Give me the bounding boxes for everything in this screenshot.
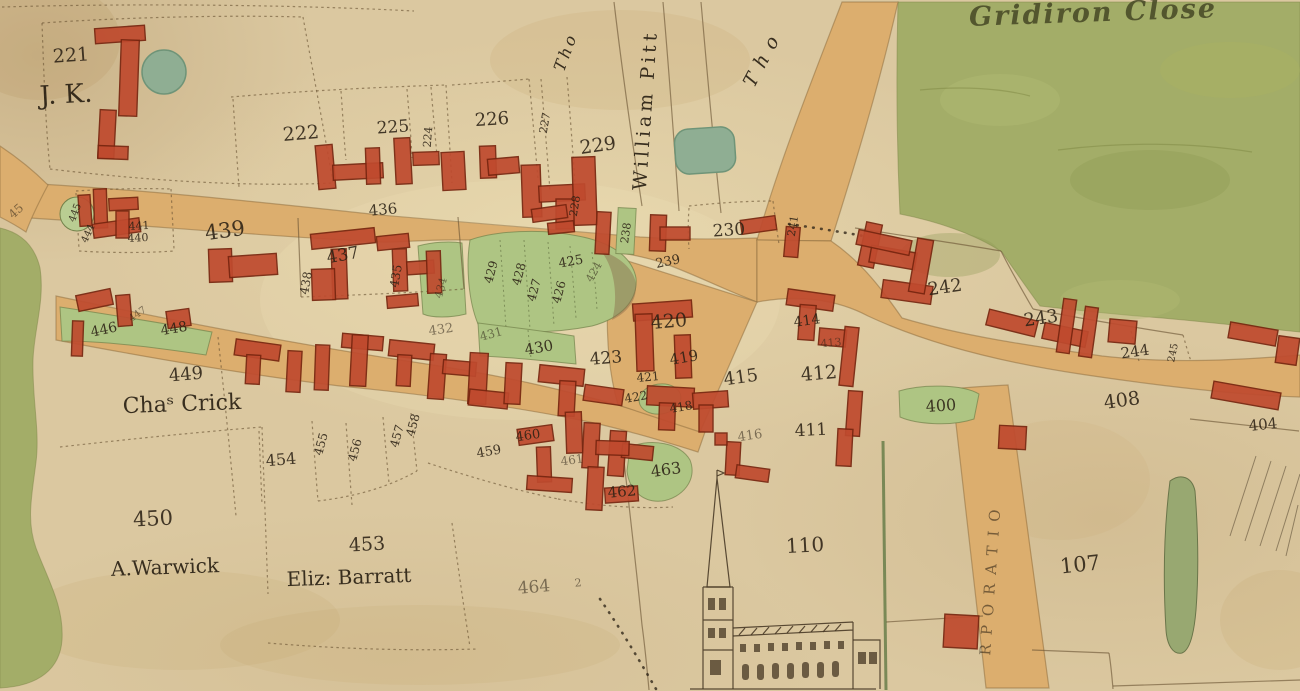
garden-strips-main [468, 231, 636, 331]
garden-434 [418, 242, 466, 317]
building [596, 440, 629, 455]
building [517, 425, 554, 446]
building [784, 226, 801, 257]
building [586, 467, 604, 511]
building [659, 403, 676, 431]
building [605, 486, 639, 503]
pond-221 [142, 50, 186, 94]
building [558, 381, 576, 417]
building [166, 308, 191, 328]
building [376, 233, 409, 250]
building [547, 221, 574, 235]
building [245, 355, 260, 385]
building [836, 429, 853, 467]
building [109, 197, 139, 211]
building [504, 363, 522, 405]
building [387, 294, 419, 309]
building [1108, 319, 1137, 344]
building [365, 148, 380, 184]
building [998, 425, 1026, 449]
building [314, 345, 330, 390]
building [350, 335, 369, 387]
building [487, 157, 519, 176]
hedge-line [883, 441, 886, 690]
stream-strip-107 [1164, 477, 1197, 653]
building [818, 328, 846, 347]
building [715, 433, 727, 445]
building [595, 212, 611, 255]
building [426, 251, 441, 293]
garden-400 [899, 386, 979, 424]
building [674, 335, 691, 379]
building [71, 321, 83, 356]
building [394, 138, 412, 185]
building [699, 405, 713, 432]
building [468, 389, 508, 409]
building [441, 151, 466, 190]
historic-town-map: 2212222242252262272282292302382392412422… [0, 0, 1300, 691]
building [735, 465, 769, 482]
building [119, 40, 140, 117]
building [635, 314, 654, 372]
slope-hatching [1230, 456, 1300, 556]
building [943, 614, 979, 649]
building [116, 294, 133, 326]
building [660, 227, 690, 240]
north-street [757, 2, 898, 241]
building [1275, 336, 1300, 366]
building [413, 152, 439, 166]
building [116, 211, 129, 238]
left-margin-field [0, 228, 62, 688]
building [286, 351, 302, 393]
building [228, 253, 277, 277]
church-drawing [690, 470, 880, 689]
building [311, 269, 335, 301]
building [572, 157, 597, 226]
building [392, 249, 407, 291]
building [565, 412, 582, 454]
building [798, 304, 816, 340]
building [98, 145, 128, 159]
pond-william-pitt [674, 126, 737, 175]
building [78, 195, 92, 227]
garden-238-strip [616, 208, 636, 255]
building [396, 355, 412, 387]
building [527, 475, 573, 492]
map-drawing-layer [0, 0, 1300, 691]
building [986, 309, 1038, 337]
